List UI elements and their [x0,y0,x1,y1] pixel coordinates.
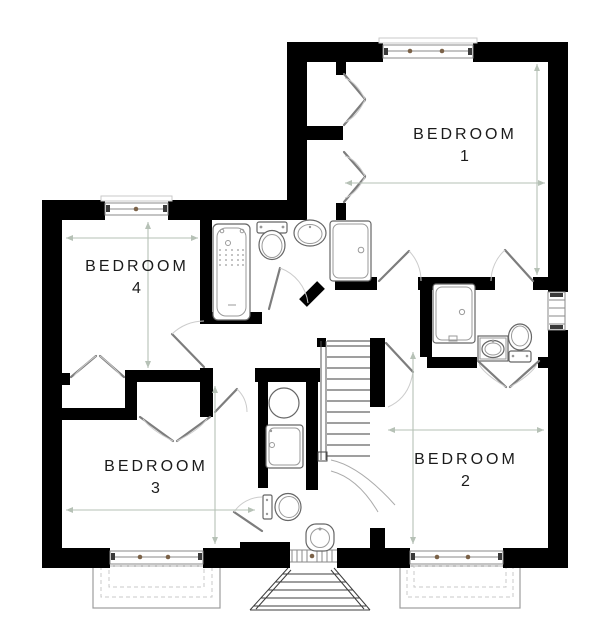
room-name: BEDROOM [381,449,551,471]
pedestal-basin-icon [306,524,334,551]
door-bedroom-3 [215,389,247,412]
closet-doors-bedroom-4 [71,356,124,377]
room-label-bedroom-4: BEDROOM 4 [52,256,222,300]
door-bedroom-4 [172,321,204,367]
window-bedroom-3 [110,551,203,564]
porch-roof [250,568,370,610]
room-label-bedroom-3: BEDROOM 3 [71,456,241,500]
basin-icon [294,220,326,246]
shower-icon-ensuite [433,284,475,343]
toilet-icon [257,222,287,260]
floor-plan: BEDROOM 1 BEDROOM 2 BEDROOM 3 BEDROOM 4 [0,0,616,636]
floor-plan-drawing [0,0,616,636]
window-bedroom-1 [379,38,477,58]
double-door-ensuite-bedroom-2 [478,361,539,387]
bay-window-right [400,566,520,608]
room-label-bedroom-1: BEDROOM 1 [380,124,550,168]
toilet-icon-ensuite [509,324,532,362]
room-number: 1 [380,146,550,168]
door-bedroom-2 [386,343,413,407]
window-landing-right [548,292,565,330]
shower-icon [330,221,371,281]
room-name: BEDROOM [71,456,241,478]
room-label-bedroom-2: BEDROOM 2 [381,449,551,493]
room-name: BEDROOM [52,256,222,278]
door-bathroom [269,268,308,309]
window-bedroom-2 [410,551,503,564]
shower-icon-shower-room [266,425,303,468]
door-shower-room [234,497,262,531]
toilet-icon-shower-room [263,494,301,521]
room-name: BEDROOM [380,124,550,146]
round-basin-icon [269,388,299,418]
window-bedroom-4 [101,196,172,215]
room-number: 3 [71,478,241,500]
door-bedroom-1-ensuite [491,250,533,281]
vanity-basin-icon [478,336,508,361]
room-number: 2 [381,471,551,493]
room-number: 4 [52,278,222,300]
bay-window-left [93,566,220,608]
door-bedroom-1 [379,251,421,281]
closet-doors-bedroom-3 [140,417,210,441]
